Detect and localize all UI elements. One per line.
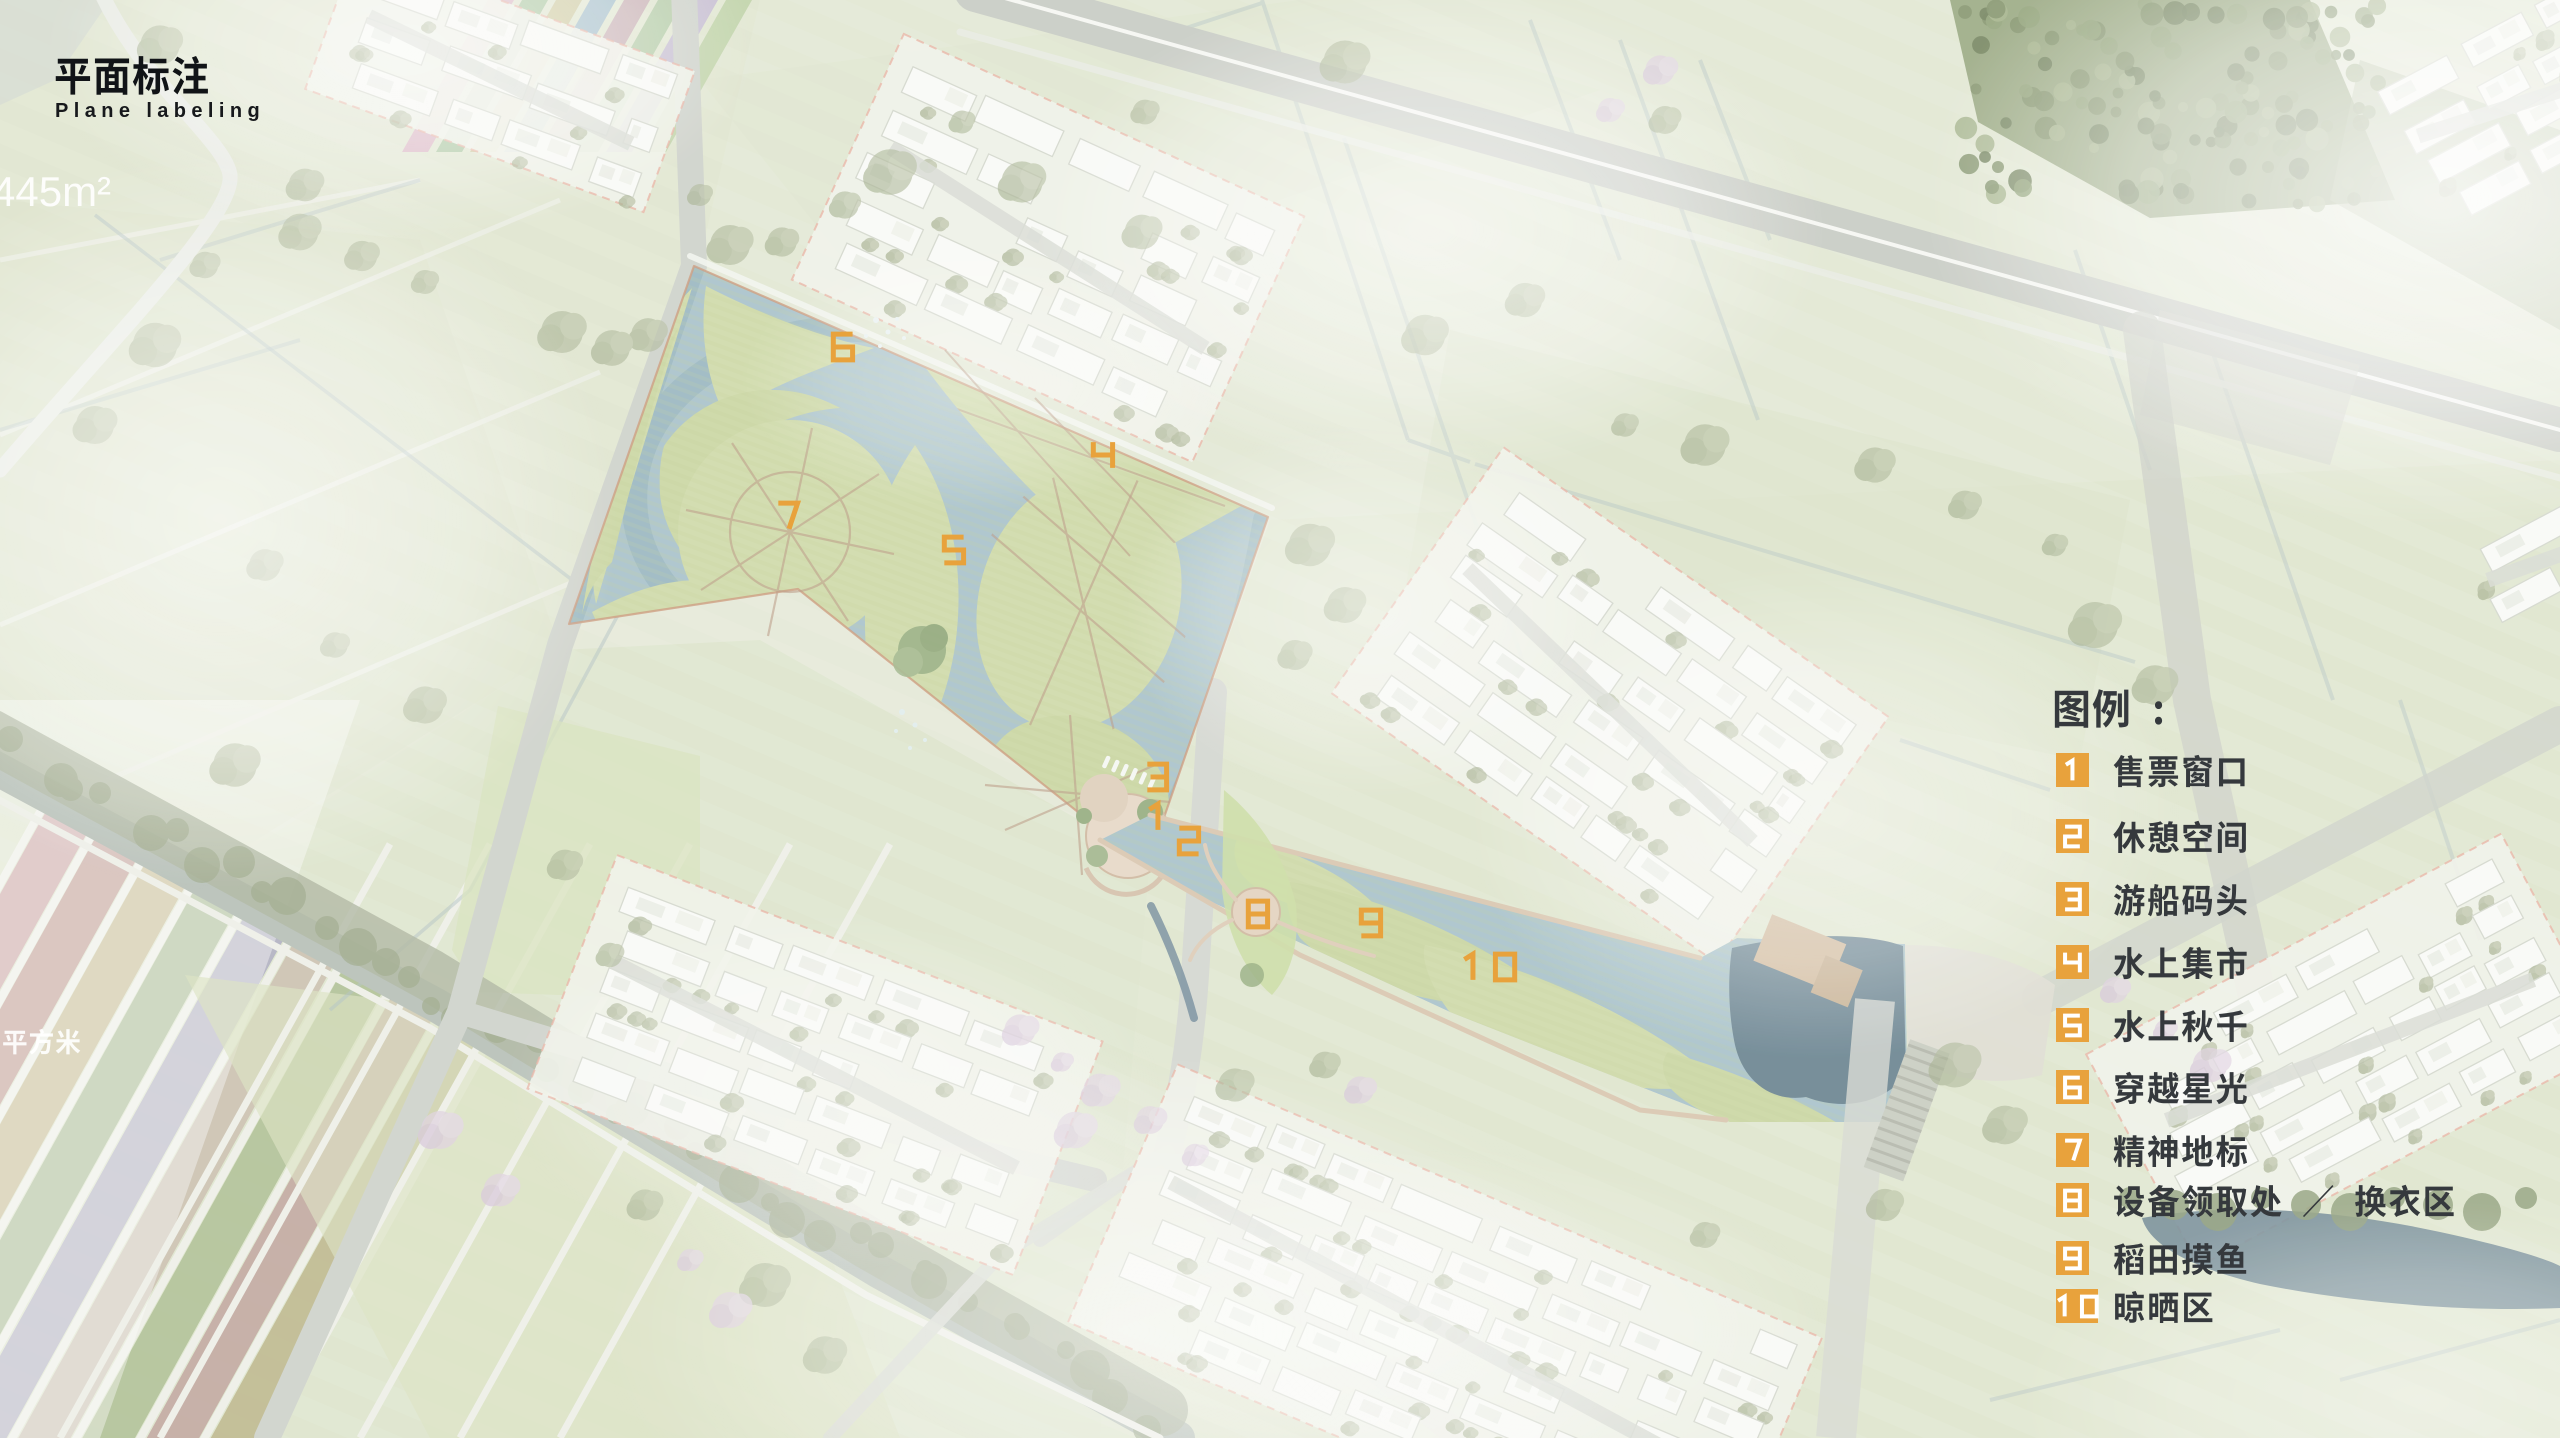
svg-text:445m²: 445m² bbox=[0, 168, 111, 215]
svg-text:Plane labeling: Plane labeling bbox=[55, 100, 265, 122]
